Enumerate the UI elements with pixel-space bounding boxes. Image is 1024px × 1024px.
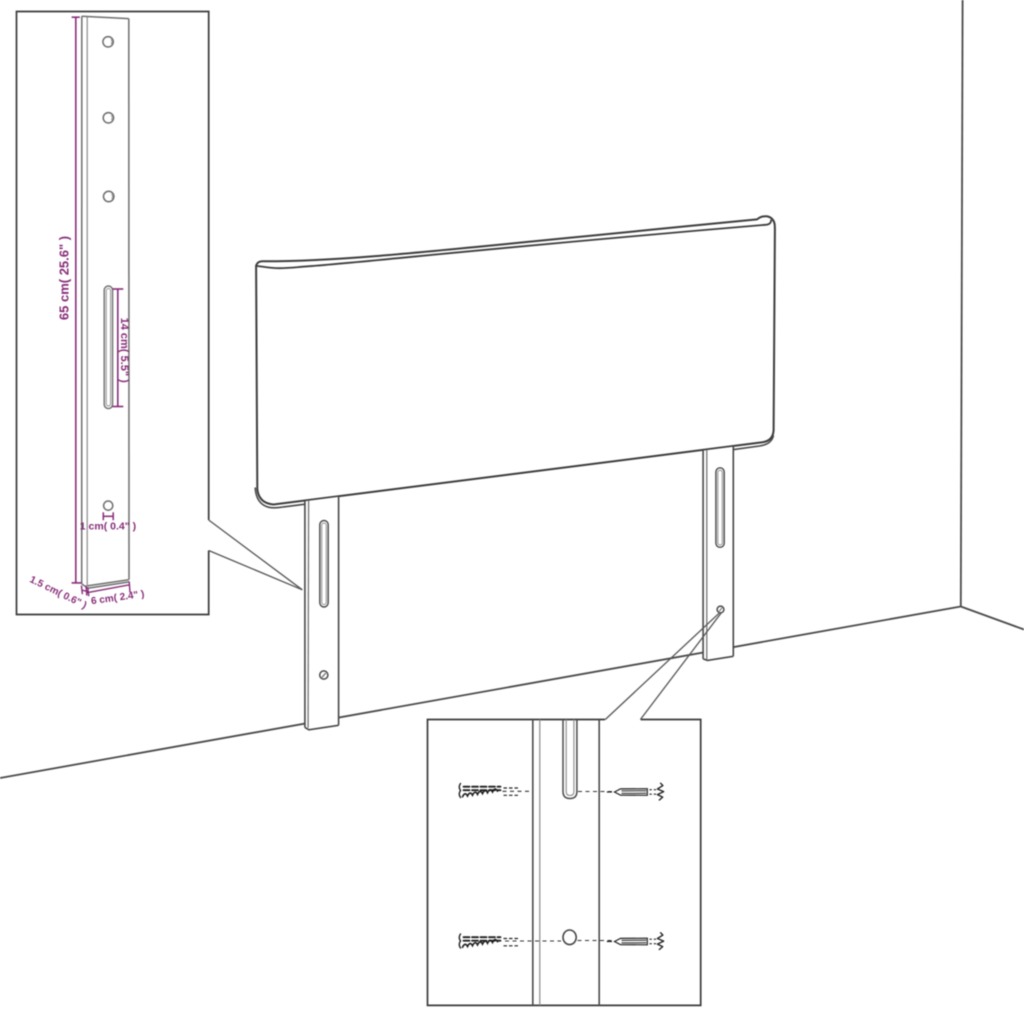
svg-text:14 cm( 5.5" ): 14 cm( 5.5" ) [118, 318, 130, 383]
svg-text:1 cm( 0.4" ): 1 cm( 0.4" ) [80, 521, 136, 533]
svg-text:65 cm( 25.6" ): 65 cm( 25.6" ) [57, 236, 72, 320]
